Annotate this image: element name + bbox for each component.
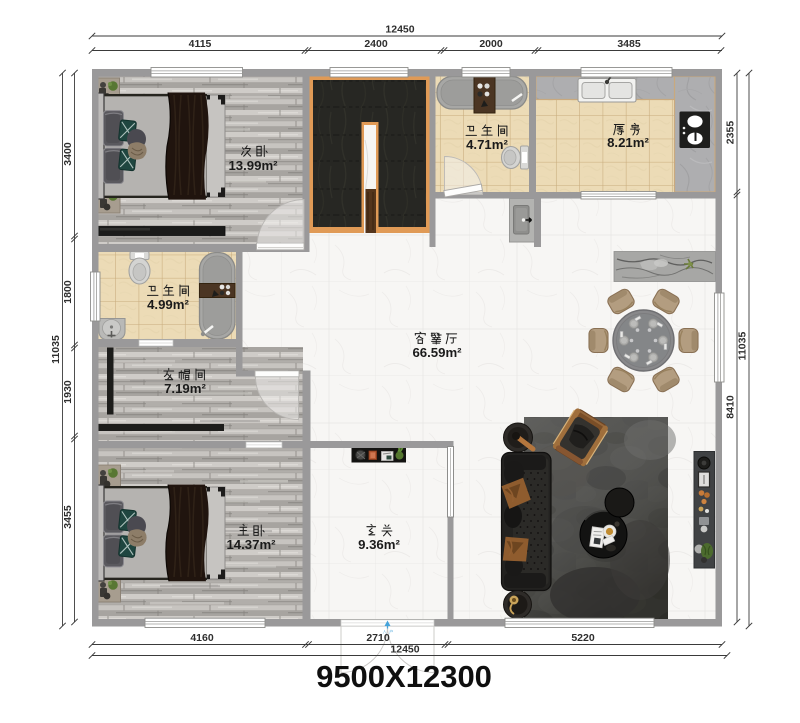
svg-text:3400: 3400: [62, 142, 74, 166]
svg-text:4.99m²: 4.99m²: [147, 297, 189, 312]
svg-text:1930: 1930: [62, 380, 74, 404]
svg-text:3455: 3455: [62, 505, 74, 529]
svg-text:12450: 12450: [390, 644, 419, 656]
svg-text:13.99m²: 13.99m²: [228, 158, 278, 173]
svg-text:11035: 11035: [737, 332, 749, 361]
svg-text:9.36m²: 9.36m²: [358, 537, 400, 552]
svg-text:11035: 11035: [50, 335, 62, 364]
svg-text:1800: 1800: [62, 280, 74, 304]
svg-text:4.71m²: 4.71m²: [466, 137, 508, 152]
svg-text:4160: 4160: [190, 632, 214, 644]
svg-text:9500X12300: 9500X12300: [316, 659, 492, 694]
svg-text:5220: 5220: [571, 632, 595, 644]
svg-text:8410: 8410: [725, 395, 737, 419]
svg-text:2355: 2355: [725, 121, 737, 145]
svg-text:8.21m²: 8.21m²: [607, 135, 649, 150]
svg-text:4115: 4115: [189, 38, 212, 50]
svg-text:14.37m²: 14.37m²: [226, 537, 276, 552]
svg-text:2400: 2400: [364, 38, 388, 50]
svg-text:2710: 2710: [366, 632, 390, 644]
svg-text:12450: 12450: [385, 24, 414, 36]
svg-text:66.59m²: 66.59m²: [412, 345, 462, 360]
svg-text:2000: 2000: [479, 38, 503, 50]
svg-text:7.19m²: 7.19m²: [164, 381, 206, 396]
svg-text:3485: 3485: [617, 38, 641, 50]
